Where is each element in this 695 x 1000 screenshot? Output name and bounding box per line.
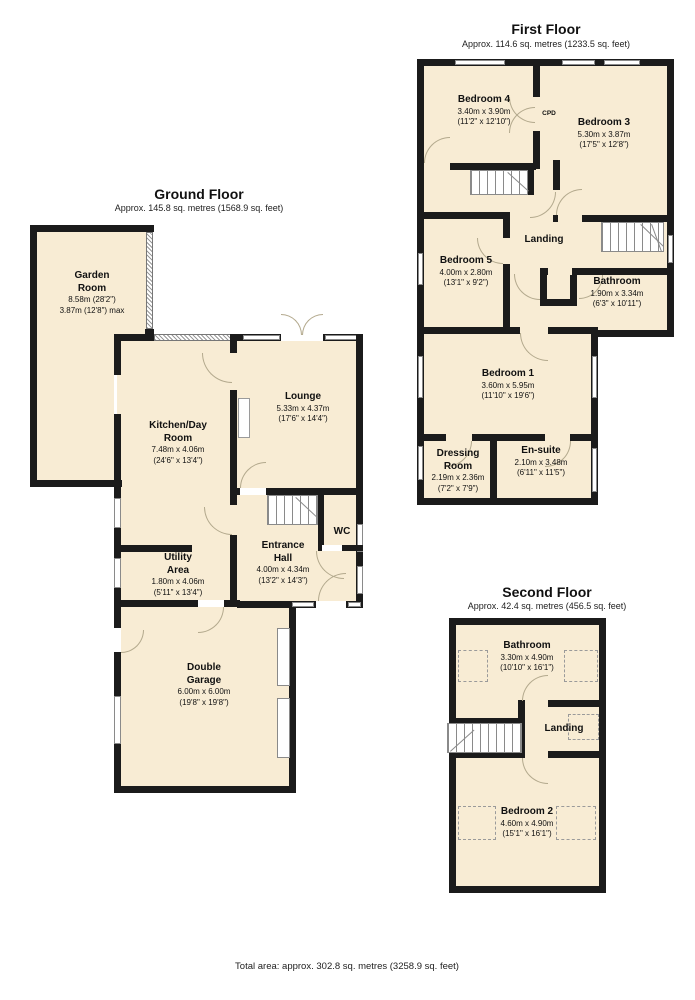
wall bbox=[572, 268, 674, 275]
room-label-landing-second: Landing bbox=[545, 723, 584, 736]
wall bbox=[30, 480, 122, 487]
wall bbox=[472, 434, 545, 441]
wall bbox=[30, 225, 37, 487]
door-arc bbox=[302, 314, 323, 335]
window bbox=[114, 558, 121, 588]
wall bbox=[230, 535, 237, 607]
room-label-entrance-hall: Entrance Hall 4.00m x 4.34m (13'2" x 14'… bbox=[257, 540, 310, 587]
wall bbox=[449, 618, 606, 625]
wall bbox=[356, 334, 363, 494]
window bbox=[114, 696, 121, 744]
room-name: En-suite bbox=[515, 445, 568, 458]
room-label-bedroom4: Bedroom 4 3.40m x 3.90m (11'2" x 12'10") bbox=[457, 94, 510, 128]
eaves-storage bbox=[458, 806, 496, 840]
room-dim: 3.87m (12'8") max bbox=[60, 306, 125, 317]
room-dim: (6'11" x 11'5") bbox=[515, 468, 568, 479]
window bbox=[604, 60, 640, 65]
room-name: CPD bbox=[542, 110, 556, 118]
wall bbox=[318, 495, 324, 550]
room-name: Dressing Room bbox=[432, 448, 485, 473]
wall bbox=[548, 751, 606, 758]
floor-plan: Ground Floor Approx. 145.8 sq. metres (1… bbox=[0, 0, 695, 1000]
room-dim: 3.60m x 5.95m bbox=[481, 381, 534, 392]
room-name: Utility Area bbox=[152, 552, 205, 577]
window bbox=[418, 446, 423, 480]
fireplace bbox=[238, 398, 250, 438]
wall bbox=[417, 327, 520, 334]
wall bbox=[30, 225, 154, 232]
room-label-bedroom1: Bedroom 1 3.60m x 5.95m (11'10" x 19'6") bbox=[481, 368, 534, 402]
wall bbox=[582, 215, 674, 222]
room-name: Garden Room bbox=[60, 270, 125, 295]
room-dim: (17'5" x 12'8") bbox=[578, 140, 631, 151]
wall bbox=[230, 341, 237, 353]
room-dim: (15'1" x 16'1") bbox=[501, 829, 554, 840]
wall bbox=[230, 334, 237, 341]
room-dim: (7'2" x 7'9") bbox=[432, 484, 485, 495]
room-dim: 4.60m x 4.90m bbox=[501, 819, 554, 830]
wall bbox=[533, 66, 540, 97]
wall bbox=[417, 498, 598, 505]
room-name: Kitchen/Day Room bbox=[149, 420, 207, 445]
wall bbox=[594, 330, 674, 337]
room-name: Bathroom bbox=[591, 276, 644, 289]
window bbox=[357, 566, 363, 594]
wall bbox=[114, 334, 154, 341]
eaves-storage bbox=[564, 650, 598, 682]
room-name: Bedroom 4 bbox=[457, 94, 510, 107]
room-dim: (10'10" x 16'1") bbox=[500, 663, 554, 674]
room-name: Landing bbox=[525, 234, 564, 247]
wall bbox=[417, 434, 446, 441]
window bbox=[592, 356, 597, 398]
wall bbox=[548, 700, 606, 707]
window bbox=[418, 253, 423, 285]
room-dim: 5.30m x 3.87m bbox=[578, 130, 631, 141]
door-arc bbox=[281, 314, 302, 335]
room-dim: (11'2" x 12'10") bbox=[457, 117, 510, 128]
glazed-wall bbox=[154, 334, 232, 341]
wall bbox=[114, 786, 296, 793]
room-dim: (13'2" x 14'3") bbox=[257, 576, 310, 587]
room-label-cpd: CPD bbox=[542, 110, 556, 118]
staircase bbox=[447, 723, 522, 753]
wall bbox=[145, 225, 154, 232]
wall bbox=[449, 753, 456, 893]
room-label-garden-room: Garden Room 8.58m (28'2") 3.87m (12'8") … bbox=[60, 270, 125, 317]
wall bbox=[230, 390, 237, 505]
room-dim: 5.33m x 4.37m bbox=[277, 404, 330, 415]
door-opening bbox=[240, 488, 266, 495]
wall bbox=[450, 163, 536, 170]
door-opening bbox=[281, 334, 323, 341]
window bbox=[325, 335, 358, 340]
wall bbox=[548, 327, 598, 334]
room-name: Double Garage bbox=[178, 662, 231, 687]
room-dim: 1.80m x 4.06m bbox=[152, 577, 205, 588]
wall bbox=[667, 59, 674, 337]
door-opening bbox=[198, 600, 224, 607]
room-name: Bedroom 5 bbox=[440, 255, 493, 268]
room-dim: 2.10m x 3.48m bbox=[515, 458, 568, 469]
room-name: WC bbox=[334, 526, 351, 539]
first-floor-subtitle: Approx. 114.6 sq. metres (1233.5 sq. fee… bbox=[462, 39, 630, 49]
wall bbox=[553, 215, 558, 222]
ground-floor-subtitle: Approx. 145.8 sq. metres (1568.9 sq. fee… bbox=[115, 203, 284, 213]
wall bbox=[417, 163, 424, 170]
window bbox=[243, 335, 280, 340]
wall bbox=[114, 545, 192, 552]
window bbox=[455, 60, 505, 65]
room-dim: 3.40m x 3.90m bbox=[457, 107, 510, 118]
wall bbox=[490, 440, 497, 498]
room-label-utility-area: Utility Area 1.80m x 4.06m (5'11" x 13'4… bbox=[152, 552, 205, 599]
room-label-landing-first: Landing bbox=[525, 234, 564, 247]
wall bbox=[540, 268, 547, 306]
second-floor-subtitle: Approx. 42.4 sq. metres (456.5 sq. feet) bbox=[468, 601, 627, 611]
total-area-note: Total area: approx. 302.8 sq. metres (32… bbox=[235, 961, 459, 972]
room-label-en-suite: En-suite 2.10m x 3.48m (6'11" x 11'5") bbox=[515, 445, 568, 479]
wall bbox=[417, 212, 509, 219]
room-dim: (24'6" x 13'4") bbox=[149, 456, 207, 467]
room-dim: 4.00m x 4.34m bbox=[257, 565, 310, 576]
room-label-bedroom2: Bedroom 2 4.60m x 4.90m (15'1" x 16'1") bbox=[501, 806, 554, 840]
room-label-double-garage: Double Garage 6.00m x 6.00m (19'8" x 19'… bbox=[178, 662, 231, 709]
wall bbox=[553, 160, 560, 190]
window bbox=[418, 356, 423, 398]
room-name: Lounge bbox=[277, 391, 330, 404]
garage-door bbox=[277, 628, 290, 686]
first-floor-title: First Floor bbox=[511, 21, 580, 37]
ground-floor-title: Ground Floor bbox=[154, 186, 243, 202]
window bbox=[114, 498, 121, 528]
room-label-bedroom3: Bedroom 3 5.30m x 3.87m (17'5" x 12'8") bbox=[578, 117, 631, 151]
room-name: Bathroom bbox=[500, 640, 554, 653]
room-label-lounge: Lounge 5.33m x 4.37m (17'6" x 14'4") bbox=[277, 391, 330, 425]
window bbox=[592, 448, 597, 492]
room-dim: 4.00m x 2.80m bbox=[440, 268, 493, 279]
eaves-storage bbox=[556, 806, 596, 840]
wall bbox=[503, 264, 510, 333]
room-name: Entrance Hall bbox=[257, 540, 310, 565]
window bbox=[562, 60, 595, 65]
room-dim: (17'6" x 14'4") bbox=[277, 414, 330, 425]
room-name: Bedroom 1 bbox=[481, 368, 534, 381]
room-name: Bedroom 2 bbox=[501, 806, 554, 819]
room-dim: 6.00m x 6.00m bbox=[178, 687, 231, 698]
room-label-wc: WC bbox=[334, 526, 351, 539]
garage-door bbox=[277, 698, 290, 758]
window bbox=[668, 235, 673, 263]
room-dim: (13'1" x 9'2") bbox=[440, 278, 493, 289]
room-dim: (19'8" x 19'8") bbox=[178, 698, 231, 709]
wall bbox=[570, 434, 598, 441]
garden-room-floor bbox=[33, 341, 114, 482]
room-name: Bedroom 3 bbox=[578, 117, 631, 130]
room-dim: 1.90m x 3.34m bbox=[591, 289, 644, 300]
room-name: Landing bbox=[545, 723, 584, 736]
room-dim: 7.48m x 4.06m bbox=[149, 445, 207, 456]
front-door-opening bbox=[316, 601, 346, 608]
wall bbox=[114, 341, 121, 375]
room-label-bedroom5: Bedroom 5 4.00m x 2.80m (13'1" x 9'2") bbox=[440, 255, 493, 289]
room-dim: (5'11" x 13'4") bbox=[152, 588, 205, 599]
room-dim: (11'10" x 19'6") bbox=[481, 391, 534, 402]
room-dim: 2.19m x 2.36m bbox=[432, 473, 485, 484]
glazed-wall bbox=[146, 232, 153, 329]
second-floor-title: Second Floor bbox=[502, 584, 591, 600]
wall bbox=[503, 212, 510, 238]
room-label-kitchen-day-room: Kitchen/Day Room 7.48m x 4.06m (24'6" x … bbox=[149, 420, 207, 467]
window bbox=[348, 602, 361, 607]
room-label-bathroom-first: Bathroom 1.90m x 3.34m (6'3" x 10'11") bbox=[591, 276, 644, 310]
room-label-dressing-room: Dressing Room 2.19m x 2.36m (7'2" x 7'9"… bbox=[432, 448, 485, 495]
room-dim: 3.30m x 4.90m bbox=[500, 653, 554, 664]
room-label-bathroom-second: Bathroom 3.30m x 4.90m (10'10" x 16'1") bbox=[500, 640, 554, 674]
wall bbox=[449, 886, 606, 893]
room-dim: 8.58m (28'2") bbox=[60, 295, 125, 306]
wall bbox=[449, 618, 456, 725]
eaves-storage bbox=[458, 650, 488, 682]
door-opening bbox=[114, 628, 121, 652]
wall bbox=[289, 607, 296, 793]
room-dim: (6'3" x 10'11") bbox=[591, 299, 644, 310]
